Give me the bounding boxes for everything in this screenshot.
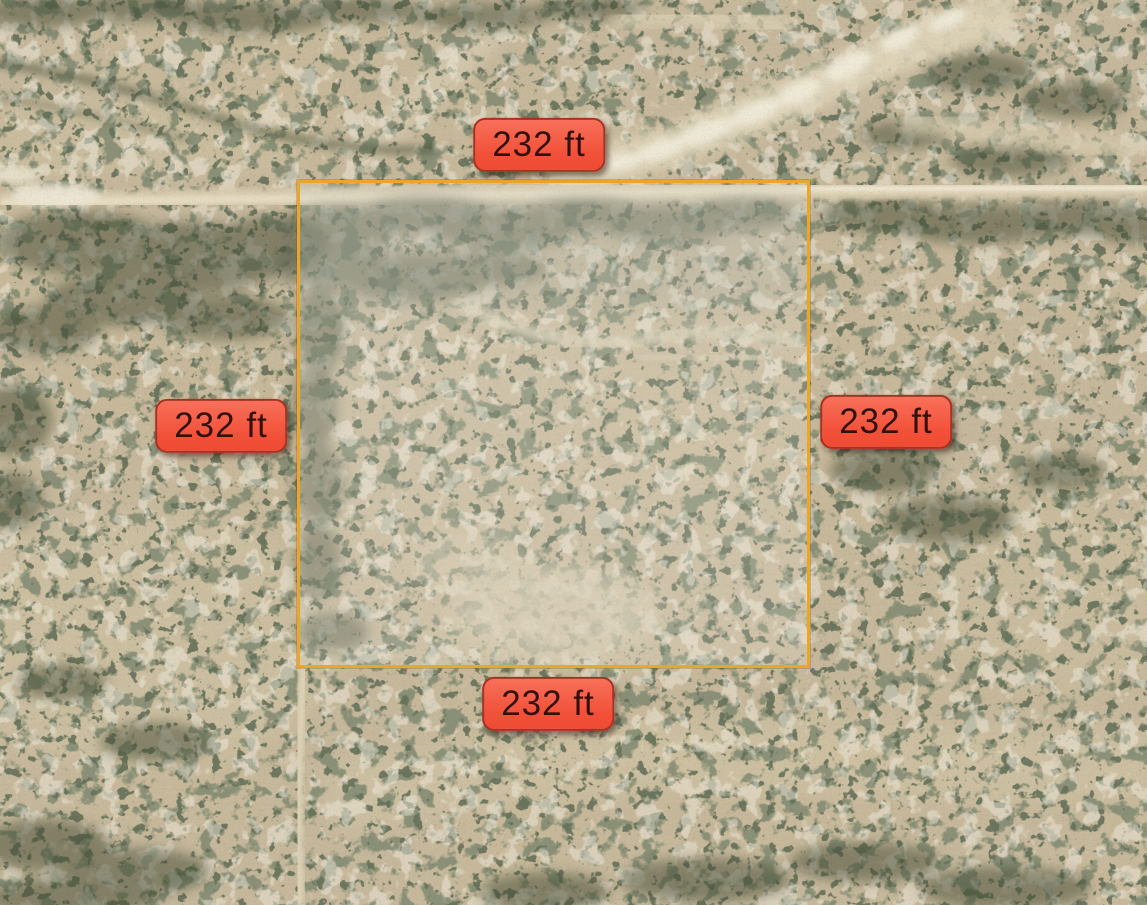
dimension-label-top: 232 ft: [473, 118, 605, 172]
dimension-label-bottom: 232 ft: [482, 677, 614, 731]
map-canvas[interactable]: 232 ft 232 ft 232 ft 232 ft: [0, 0, 1147, 905]
dimension-label-left: 232 ft: [155, 399, 287, 453]
dimension-label-right: 232 ft: [820, 395, 952, 449]
parcel-boundary-overlay: [297, 180, 810, 668]
